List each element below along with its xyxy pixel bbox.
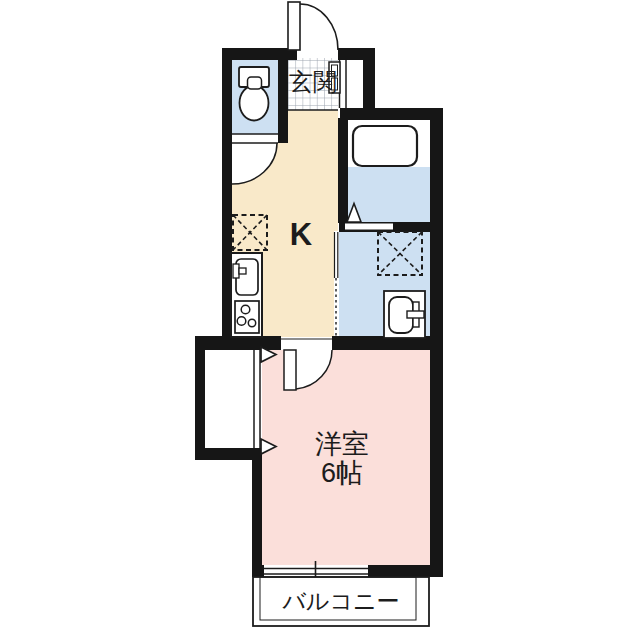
bedroom-label: 洋室 [315, 429, 369, 459]
toilet-bowl [240, 86, 269, 121]
wall-segment [252, 565, 264, 577]
wall-segment [195, 448, 262, 460]
wall-segment [195, 336, 205, 460]
wall-segment [338, 118, 348, 223]
washbasin-faucet-bar [407, 311, 424, 318]
bath-threshold [345, 223, 393, 230]
wall-segment [430, 108, 443, 577]
stove-icon [235, 301, 259, 333]
bathtub-icon [353, 126, 417, 166]
wall-segment [252, 448, 262, 577]
toilet-lid [248, 77, 262, 89]
door-leaf [288, 2, 300, 50]
door-swing-arc [300, 4, 338, 50]
wall-segment [195, 336, 281, 350]
kitchen-faucet-bar [239, 268, 246, 274]
bedroom-size-label: 6帖 [321, 458, 363, 488]
kitchen-label: K [290, 217, 313, 252]
kitchen-faucet [233, 264, 239, 278]
stove-burner [241, 305, 250, 314]
door-leaf [232, 134, 278, 143]
floorplan-canvas: 玄関 K 洋室 6帖 バルコニー [0, 0, 640, 640]
wall-segment [278, 58, 288, 143]
balcony-label: バルコニー [281, 588, 399, 614]
toilet-icon [239, 67, 269, 121]
wall-segment [340, 108, 443, 120]
stove-burner [237, 317, 246, 326]
entrance-door [288, 2, 338, 50]
stove-burner [248, 319, 255, 326]
door-leaf [284, 350, 296, 390]
entrance-label: 玄関 [289, 68, 337, 95]
wall-segment [368, 565, 443, 577]
bath-floor [348, 167, 430, 222]
floorplan-drawing: 玄関 K 洋室 6帖 バルコニー [0, 0, 640, 640]
washbasin-icon [384, 291, 425, 338]
wall-segment [363, 48, 375, 112]
